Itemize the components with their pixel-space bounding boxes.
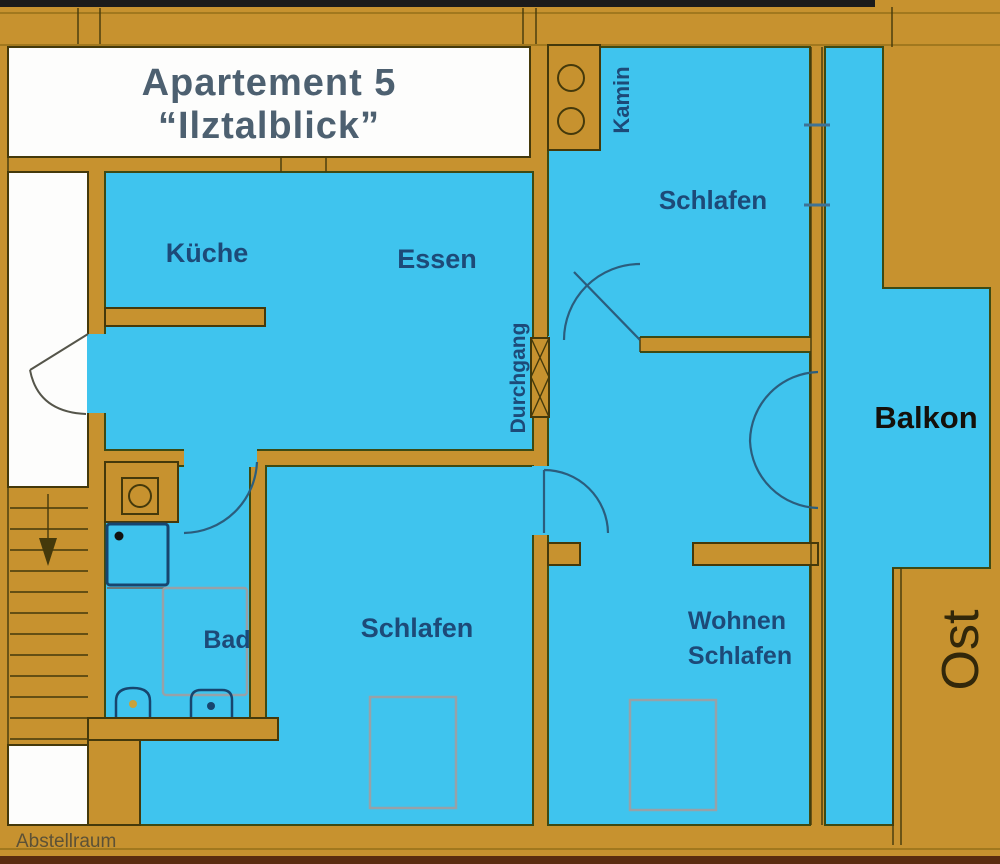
bidet-drain-dot bbox=[207, 702, 215, 710]
room-label-essen: Essen bbox=[397, 244, 477, 274]
floor-plan-page: Apartement 5 “Ilztalblick” Küche Essen S… bbox=[0, 0, 1000, 864]
room-label-bad: Bad bbox=[203, 626, 250, 654]
plan-title-line1: Apartement 5 bbox=[142, 62, 397, 104]
room-label-balkon: Balkon bbox=[874, 400, 977, 435]
room-label-wohnen: Wohnen bbox=[688, 607, 786, 635]
label-ost-orientation: Ost bbox=[932, 609, 990, 690]
durchgang-partition bbox=[531, 338, 549, 417]
entry-area bbox=[8, 172, 88, 487]
room-wohnen-schlafen-area bbox=[548, 352, 810, 825]
plan-title-line2: “Ilztalblick” bbox=[158, 105, 380, 147]
label-abstellraum: Abstellraum bbox=[16, 831, 116, 852]
entry-door-opening bbox=[87, 334, 106, 413]
stair-landing-area bbox=[8, 745, 88, 825]
label-durchgang: Durchgang bbox=[507, 323, 530, 434]
room-label-kueche: Küche bbox=[166, 238, 249, 268]
top-border-strip bbox=[0, 0, 875, 7]
room-label-schlafen-top: Schlafen bbox=[659, 185, 767, 215]
room-label-wohnen-schlafen: Schlafen bbox=[688, 642, 792, 670]
shower-drain-icon bbox=[115, 532, 124, 541]
bottom-border-strip bbox=[0, 856, 1000, 864]
toilet-lid-dot bbox=[129, 700, 137, 708]
schlafen-top-door-opening bbox=[548, 336, 640, 353]
floor-plan: Apartement 5 “Ilztalblick” Küche Essen S… bbox=[0, 0, 1000, 864]
wohnen-wall-stub-left bbox=[548, 543, 580, 565]
kitchen-counter-divider bbox=[105, 308, 265, 326]
wohnen-door-opening bbox=[532, 466, 549, 535]
bad-bottom-wall bbox=[88, 718, 278, 740]
corridor-wall-block bbox=[88, 740, 140, 825]
room-label-schlafen-bottom: Schlafen bbox=[361, 613, 474, 643]
label-kamin: Kamin bbox=[609, 66, 634, 133]
bad-door-opening bbox=[184, 449, 257, 467]
wohnen-wall-stub-right bbox=[693, 543, 818, 565]
